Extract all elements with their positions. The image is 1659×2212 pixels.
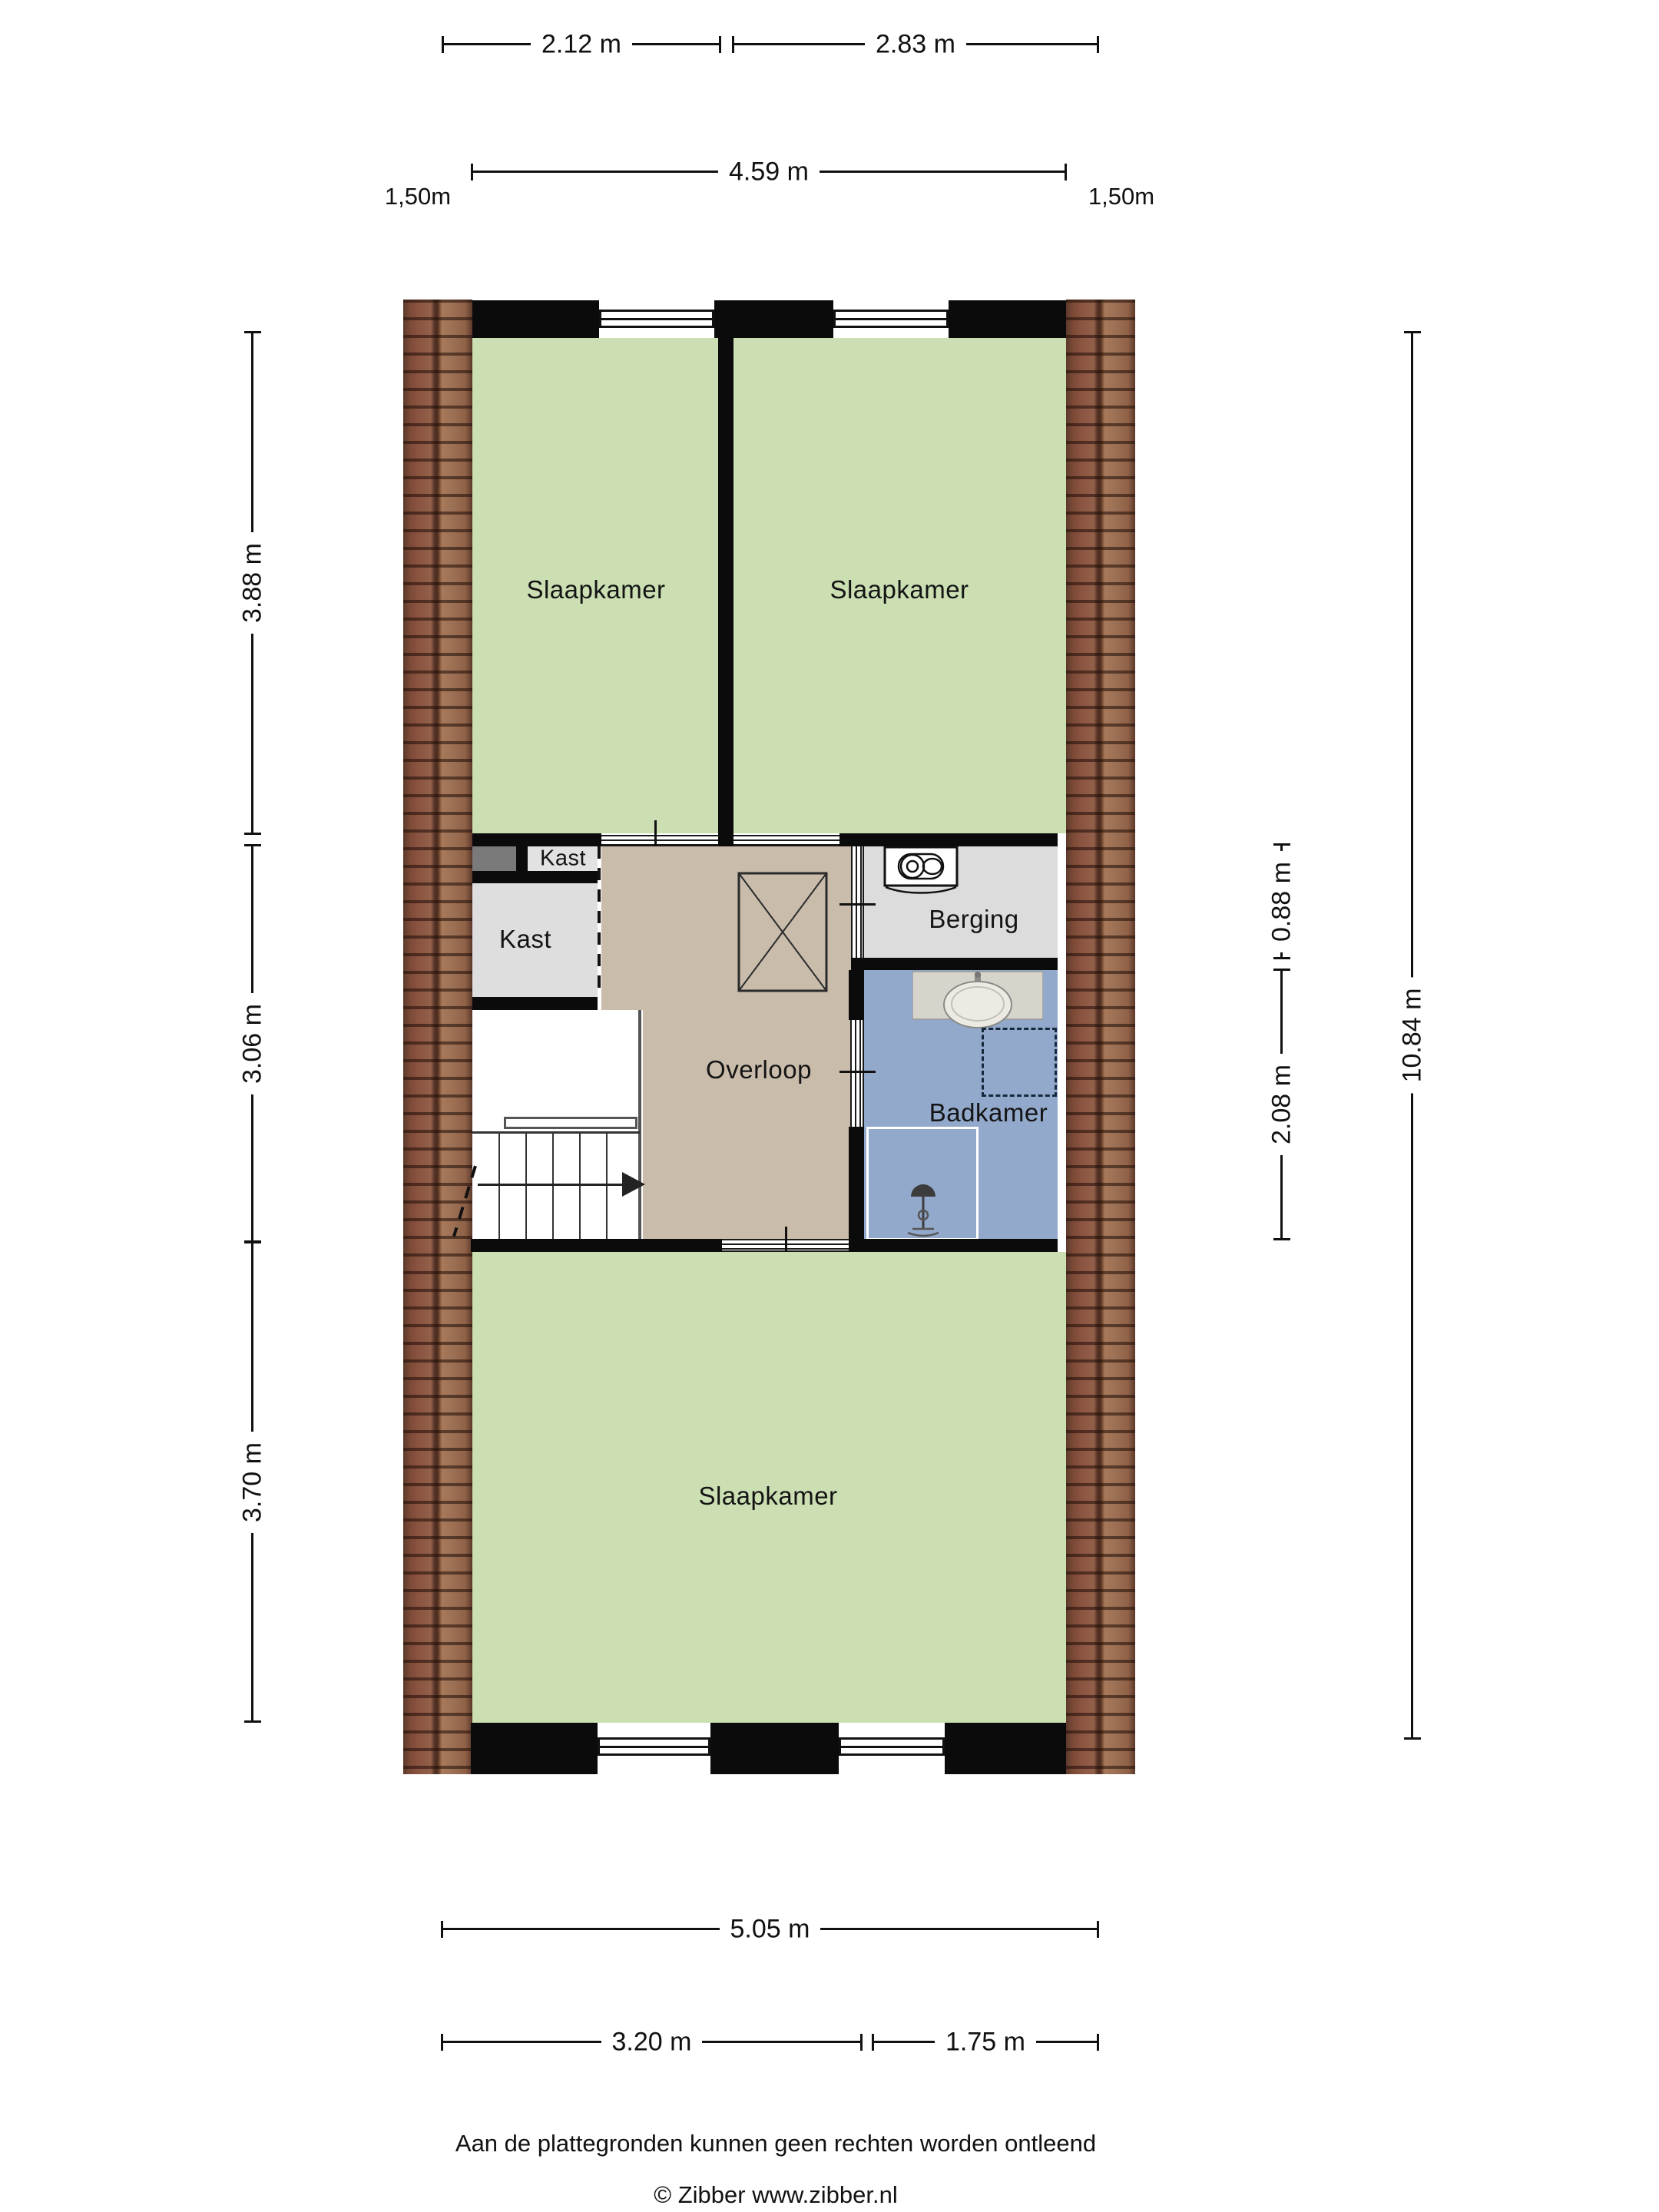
room-label-kast-small: Kast [540,846,586,872]
stair-tread [498,1133,500,1239]
dim-label: 0.88 m [1267,851,1297,952]
wall-bottom-a [471,1723,598,1774]
stairs-railing [504,1117,637,1129]
window-top-right-icon [833,310,949,328]
wall-top-c [949,300,1066,338]
dim-bottom-left-width: 3.20 m [442,2041,862,2043]
wall-below-kast [472,997,598,1010]
dim-label: 3.88 m [238,532,268,634]
dim-bottom-total-width: 5.05 m [442,1928,1098,1930]
roof-tiles-right [1066,300,1135,1774]
roof-tiles-left [403,300,472,1774]
dim-label: 3.06 m [238,993,268,1094]
sink-icon [912,970,1043,1031]
interior-window-band-right [733,835,839,846]
wall-bottom-c [945,1723,1066,1774]
closet-shelf-block [472,846,516,871]
ceiling-height-dashed-line [598,846,601,997]
room-label-kast: Kast [499,925,551,954]
void-cross-icon [737,872,828,992]
dim-left-bottom-height: 3.70 m [251,1242,253,1722]
interior-window-band-left [601,835,718,846]
room-label-slaapkamer-top-right: Slaapkamer [829,575,969,604]
dim-label: 5.05 m [720,1915,821,1945]
window-top-left-icon [599,310,714,328]
wall-mid-left [472,833,601,846]
dim-top-room-right-width: 2.83 m [733,43,1098,45]
berging-door-band [851,846,864,958]
dim-left-middle-height: 3.06 m [251,845,253,1242]
dim-bottom-right-width: 1.75 m [873,2041,1098,2043]
wall-below-kast-small [472,871,598,883]
dim-top-room-left-width: 2.12 m [442,43,720,45]
room-label-badkamer: Badkamer [929,1098,1048,1128]
room-label-overloop: Overloop [706,1055,812,1084]
stair-tread [525,1133,527,1239]
wall-bottom-b [710,1723,839,1774]
room-label-slaapkamer-top-left: Slaapkamer [526,575,665,604]
dim-label: 10.84 m [1398,978,1428,1094]
dim-right-total-height: 10.84 m [1411,332,1413,1739]
dim-top-total-width: 4.59 m [472,171,1066,173]
stairs-direction-arrow [478,1184,628,1186]
floor-plan-page: Slaapkamer Slaapkamer Kast Kast Overloop… [0,0,1659,2212]
reference-tick-badkamer-door [839,1071,876,1073]
footer-credit: © Zibber www.zibber.nl [0,2181,1551,2209]
wall-closet-small [516,846,528,871]
room-label-berging: Berging [929,905,1018,934]
wall-bedroom-divider [718,338,733,846]
wall-berging-badkamer [851,958,1058,970]
stair-tread [552,1133,554,1239]
stair-tread [579,1133,581,1239]
dim-label: 2.12 m [531,30,632,60]
reference-tick-berging-door [839,903,876,906]
room-label-slaapkamer-bottom: Slaapkamer [698,1482,837,1511]
stairs-direction-arrowhead [622,1172,645,1197]
eaves-height-label-right: 1,50m [1060,183,1183,210]
stairwell-side-wall [638,1010,641,1239]
stairs-top-edge [472,1131,640,1134]
wall-badkamer-left-upper [849,970,864,1020]
wall-top-b [714,300,833,338]
dim-label: 1.75 m [935,2028,1036,2058]
window-bottom-left-icon [598,1737,710,1756]
wall-mid-right [839,833,1058,846]
dim-right-badkamer-height: 2.08 m [1280,969,1283,1240]
shower-area-dashed [982,1028,1057,1097]
dim-label: 2.83 m [865,30,966,60]
footer-disclaimer: Aan de plattegronden kunnen geen rechten… [0,2130,1551,2157]
dim-label: 4.59 m [718,157,820,187]
window-bottom-right-icon [839,1737,945,1756]
wall-lower-left [471,1239,722,1252]
badkamer-door-band [850,1020,864,1127]
dim-left-bedrooms-height: 3.88 m [251,332,253,834]
washing-machine-icon [883,846,959,894]
stair-tread [606,1133,608,1239]
wall-badkamer-left-lower [849,1127,864,1239]
wall-top-a [472,300,599,338]
wall-lower-right [849,1239,1058,1252]
shower-icon [903,1181,943,1240]
eaves-height-label-left: 1,50m [356,183,479,210]
dim-label: 3.70 m [238,1432,268,1533]
dim-right-berging-height: 0.88 m [1280,844,1283,959]
dim-label: 2.08 m [1267,1054,1297,1155]
dim-label: 3.20 m [601,2028,703,2058]
